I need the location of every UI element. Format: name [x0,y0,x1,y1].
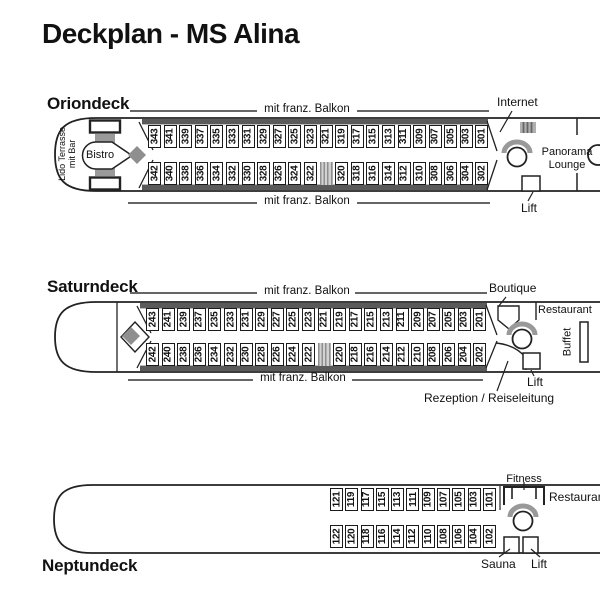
cabin-number: 332 [227,166,238,182]
cabin-number: 227 [272,312,283,328]
cabin-number: 230 [241,347,252,363]
cabin-107: 107 [437,488,450,511]
neptundeck-hull [54,482,600,557]
cabin-233: 233 [224,308,237,331]
cabin-234: 234 [208,343,221,366]
deckplan-drawing [0,0,600,600]
cabin-number: 219 [334,312,345,328]
oriondeck-cabin-row-top: 3433413393373353333313293273253233213193… [148,125,488,148]
cabin-number: 226 [272,347,283,363]
cabin-number: 223 [303,312,314,328]
cabin-308: 308 [429,162,442,185]
cabin-number: 331 [243,129,254,145]
sauna-room [504,537,519,553]
cabin-302: 302 [475,162,488,185]
cabin-336: 336 [195,162,208,185]
cabin-number: 115 [377,492,388,507]
cabin-number: 119 [346,492,357,507]
bistro-label: Bistro [86,149,114,161]
page-title: Deckplan - MS Alina [42,18,299,50]
cabin-305: 305 [444,125,457,148]
cabin-number: 212 [397,347,408,363]
cabin-number: 103 [469,492,480,508]
cabin-number: 116 [377,529,388,544]
cabin-number: 303 [461,129,472,145]
cabin-330: 330 [242,162,255,185]
cabin-231: 231 [240,308,253,331]
cabin-number: 105 [453,492,464,508]
cabin-number: 114 [392,529,403,544]
cabin-number: 333 [227,129,238,145]
gangway-top [90,121,120,133]
cabin-114: 114 [391,525,404,548]
cabin-205: 205 [442,308,455,331]
cabin-number: 233 [225,312,236,328]
cabin-110: 110 [422,525,435,548]
cabin-215: 215 [364,308,377,331]
balkon-label-saturn-bottom: mit franz. Balkon [246,372,360,384]
cabin-number: 101 [484,492,495,508]
cabin-342: 342 [148,162,161,185]
balkon-label-orion-bottom: mit franz. Balkon [250,195,364,207]
cabin-208: 208 [427,343,440,366]
cabin-103: 103 [468,488,481,511]
cabin-318: 318 [351,162,364,185]
cabin-number: 106 [453,529,464,545]
cabin-106: 106 [452,525,465,548]
cabin-237: 237 [193,308,206,331]
cabin-228: 228 [255,343,268,366]
cabin-number: 322 [305,166,316,182]
cabin-number: 112 [407,529,418,544]
cabin-221: 221 [318,308,331,331]
cabin-number: 242 [147,347,158,363]
cabin-331: 331 [242,125,255,148]
cabin-number: 321 [321,129,332,145]
cabin-206: 206 [442,343,455,366]
cabin-328: 328 [257,162,270,185]
saturndeck-cabin-row-bottom: 2422402382362342322302282262242222202182… [146,343,486,366]
cabin-number: 338 [180,166,191,182]
cabin-number: 310 [414,166,425,182]
cabin-number: 213 [381,312,392,328]
sauna-label: Sauna [481,557,516,571]
lift-room [523,353,540,369]
cabin-324: 324 [288,162,301,185]
lift-label-orion: Lift [521,201,537,215]
cabin-number: 305 [445,129,456,145]
cabin-number: 337 [196,129,207,145]
cabin-213: 213 [380,308,393,331]
cabin-number: 102 [484,529,495,545]
lift-pointer [528,192,533,201]
oriondeck-balcony-strip-bottom [142,185,488,191]
cabin-236: 236 [193,343,206,366]
cabin-216: 216 [364,343,377,366]
cabin-number: 221 [319,312,330,328]
cabin-number: 117 [362,492,373,507]
cabin-325: 325 [288,125,301,148]
cabin-116: 116 [376,525,389,548]
cabin-number: 110 [423,529,434,544]
cabin-number: 312 [399,166,410,182]
neptundeck-cabin-row-top: 121119117115113111109107105103101 [330,488,496,511]
oriondeck-balcony-strip-top [142,119,488,125]
cabin-340: 340 [164,162,177,185]
lift-label-neptun: Lift [531,557,547,571]
cabin-number: 323 [305,129,316,145]
cabin-number: 209 [412,312,423,328]
cabin-105: 105 [452,488,465,511]
buffet-counter [580,322,588,362]
stairs-hatch [320,162,333,185]
cabin-number: 232 [225,347,236,363]
cabin-number: 104 [469,529,480,545]
cabin-number: 308 [430,166,441,182]
cabin-322: 322 [304,162,317,185]
balkon-label-orion-top: mit franz. Balkon [250,103,364,115]
cabin-101: 101 [483,488,496,511]
cabin-329: 329 [257,125,270,148]
cabin-number: 315 [367,129,378,145]
cabin-number: 122 [331,529,342,545]
cabin-number: 304 [461,166,472,182]
cabin-317: 317 [351,125,364,148]
cabin-209: 209 [411,308,424,331]
cabin-113: 113 [391,488,404,511]
cabin-108: 108 [437,525,450,548]
spiral-stairs-icon [514,512,533,531]
cabin-112: 112 [406,525,419,548]
cabin-number: 107 [438,492,449,508]
cabin-109: 109 [422,488,435,511]
buffet-label: Buffet [561,328,573,357]
cabin-number: 229 [256,312,267,328]
cabin-241: 241 [162,308,175,331]
neptundeck-label: Neptundeck [42,556,137,576]
cabin-number: 316 [367,166,378,182]
cabin-number: 118 [362,529,373,544]
cabin-120: 120 [345,525,358,548]
cabin-121: 121 [330,488,343,511]
cabin-number: 113 [392,492,403,507]
cabin-number: 207 [428,312,439,328]
cabin-312: 312 [398,162,411,185]
cabin-309: 309 [413,125,426,148]
cabin-number: 201 [474,312,485,328]
neptundeck-cabin-row-bottom: 122120118116114112110108106104102 [330,525,496,548]
cabin-number: 311 [399,129,410,144]
cabin-number: 120 [346,529,357,545]
oriondeck-cabin-row-bottom: 3423403383363343323303283263243223203183… [148,162,488,185]
cabin-number: 208 [428,347,439,363]
deckplan-page: Deckplan - MS Alina Oriondeck mit franz.… [0,0,600,600]
restaurant-label-saturn: Restaurant [538,304,592,316]
cabin-number: 325 [289,129,300,145]
cabin-338: 338 [179,162,192,185]
cabin-333: 333 [226,125,239,148]
cabin-118: 118 [361,525,374,548]
cabin-115: 115 [376,488,389,511]
cabin-number: 111 [407,492,418,507]
cabin-238: 238 [177,343,190,366]
cabin-337: 337 [195,125,208,148]
cabin-117: 117 [361,488,374,511]
gangway-bottom [90,178,120,190]
cabin-number: 340 [165,166,176,182]
cabin-229: 229 [255,308,268,331]
cabin-number: 327 [274,129,285,145]
cabin-217: 217 [349,308,362,331]
cabin-number: 237 [194,312,205,328]
oriondeck-label: Oriondeck [47,94,129,114]
cabin-235: 235 [208,308,221,331]
cabin-number: 236 [194,347,205,363]
cabin-218: 218 [349,343,362,366]
cabin-number: 205 [443,312,454,328]
cabin-number: 235 [209,312,220,328]
cabin-number: 202 [474,347,485,363]
cabin-315: 315 [366,125,379,148]
cabin-number: 206 [443,347,454,363]
cabin-number: 214 [381,347,392,363]
cabin-310: 310 [413,162,426,185]
cabin-number: 330 [243,166,254,182]
cabin-number: 326 [274,166,285,182]
cabin-number: 335 [211,129,222,145]
cabin-223: 223 [302,308,315,331]
cabin-314: 314 [382,162,395,185]
cabin-104: 104 [468,525,481,548]
cabin-311: 311 [398,125,411,148]
cabin-203: 203 [458,308,471,331]
cabin-number: 109 [423,492,434,508]
cabin-222: 222 [302,343,315,366]
cabin-number: 241 [163,312,174,328]
restaurant-label-neptun: Restaurant [549,490,600,504]
cabin-306: 306 [444,162,457,185]
rezeption-label: Rezeption / Reiseleitung [424,391,554,405]
cabin-226: 226 [271,343,284,366]
cabin-number: 238 [178,347,189,363]
cabin-number: 210 [412,347,423,363]
spiral-stairs-icon [508,148,527,167]
cabin-321: 321 [320,125,333,148]
cabin-119: 119 [345,488,358,511]
cabin-326: 326 [273,162,286,185]
cabin-number: 324 [289,166,300,182]
cabin-number: 203 [459,312,470,328]
cabin-211: 211 [396,308,409,331]
cabin-number: 342 [149,166,160,182]
stairs-hatch [318,343,331,366]
cabin-number: 224 [287,347,298,363]
balkon-label-saturn-top: mit franz. Balkon [250,285,364,297]
cabin-224: 224 [286,343,299,366]
cabin-204: 204 [458,343,471,366]
fitness-label: Fitness [496,473,552,482]
cabin-number: 240 [163,347,174,363]
cabin-number: 217 [350,312,361,328]
cabin-122: 122 [330,525,343,548]
cabin-number: 301 [476,129,487,145]
cabin-212: 212 [396,343,409,366]
cabin-225: 225 [286,308,299,331]
cabin-number: 302 [476,166,487,182]
internet-label: Internet [497,95,538,109]
cabin-240: 240 [162,343,175,366]
cabin-number: 222 [303,347,314,363]
cabin-214: 214 [380,343,393,366]
cabin-number: 329 [258,129,269,145]
cabin-242: 242 [146,343,159,366]
cabin-number: 339 [180,129,191,145]
saturndeck-balcony-strip-bottom [140,366,487,372]
cabin-number: 320 [336,166,347,182]
cabin-number: 341 [165,129,176,145]
cabin-number: 318 [352,166,363,182]
cabin-number: 215 [365,312,376,328]
cabin-313: 313 [382,125,395,148]
cabin-number: 336 [196,166,207,182]
cabin-323: 323 [304,125,317,148]
cabin-number: 121 [331,492,342,508]
cabin-number: 313 [383,129,394,145]
saturndeck-cabin-row-top: 2432412392372352332312292272252232212192… [146,308,486,331]
panorama-lounge-label: Panorama Lounge [535,146,599,171]
cabin-number: 225 [287,312,298,328]
cabin-number: 317 [352,129,363,145]
cabin-327: 327 [273,125,286,148]
cabin-220: 220 [333,343,346,366]
cabin-number: 309 [414,129,425,145]
cabin-219: 219 [333,308,346,331]
cabin-334: 334 [210,162,223,185]
cabin-304: 304 [460,162,473,185]
lido-terrasse-label: Lido Terrasse mit Bar [58,122,78,186]
cabin-number: 231 [241,312,252,328]
cabin-number: 328 [258,166,269,182]
cabin-301: 301 [475,125,488,148]
saturndeck-label: Saturndeck [47,277,138,297]
cabin-number: 211 [397,312,408,327]
cabin-230: 230 [240,343,253,366]
cabin-number: 314 [383,166,394,182]
spiral-stairs-icon [513,330,532,349]
cabin-number: 204 [459,347,470,363]
cabin-320: 320 [335,162,348,185]
cabin-207: 207 [427,308,440,331]
lift-room [523,537,538,553]
cabin-102: 102 [483,525,496,548]
boutique-label: Boutique [489,281,536,295]
cabin-number: 239 [178,312,189,328]
cabin-307: 307 [429,125,442,148]
cabin-number: 216 [365,347,376,363]
cabin-number: 220 [334,347,345,363]
cabin-303: 303 [460,125,473,148]
cabin-227: 227 [271,308,284,331]
cabin-343: 343 [148,125,161,148]
cabin-201: 201 [473,308,486,331]
cabin-111: 111 [406,488,419,511]
cabin-number: 334 [211,166,222,182]
cabin-number: 228 [256,347,267,363]
lift-label-saturn: Lift [527,375,543,389]
cabin-number: 108 [438,529,449,545]
cabin-number: 218 [350,347,361,363]
cabin-319: 319 [335,125,348,148]
cabin-number: 343 [149,129,160,145]
lift-room [522,176,540,191]
cabin-341: 341 [164,125,177,148]
cabin-202: 202 [473,343,486,366]
cabin-335: 335 [210,125,223,148]
cabin-number: 234 [209,347,220,363]
cabin-210: 210 [411,343,424,366]
cabin-316: 316 [366,162,379,185]
cabin-number: 243 [147,312,158,328]
cabin-number: 306 [445,166,456,182]
cabin-232: 232 [224,343,237,366]
cabin-number: 319 [336,129,347,145]
cabin-239: 239 [177,308,190,331]
cabin-339: 339 [179,125,192,148]
cabin-332: 332 [226,162,239,185]
cabin-number: 307 [430,129,441,145]
cabin-243: 243 [146,308,159,331]
